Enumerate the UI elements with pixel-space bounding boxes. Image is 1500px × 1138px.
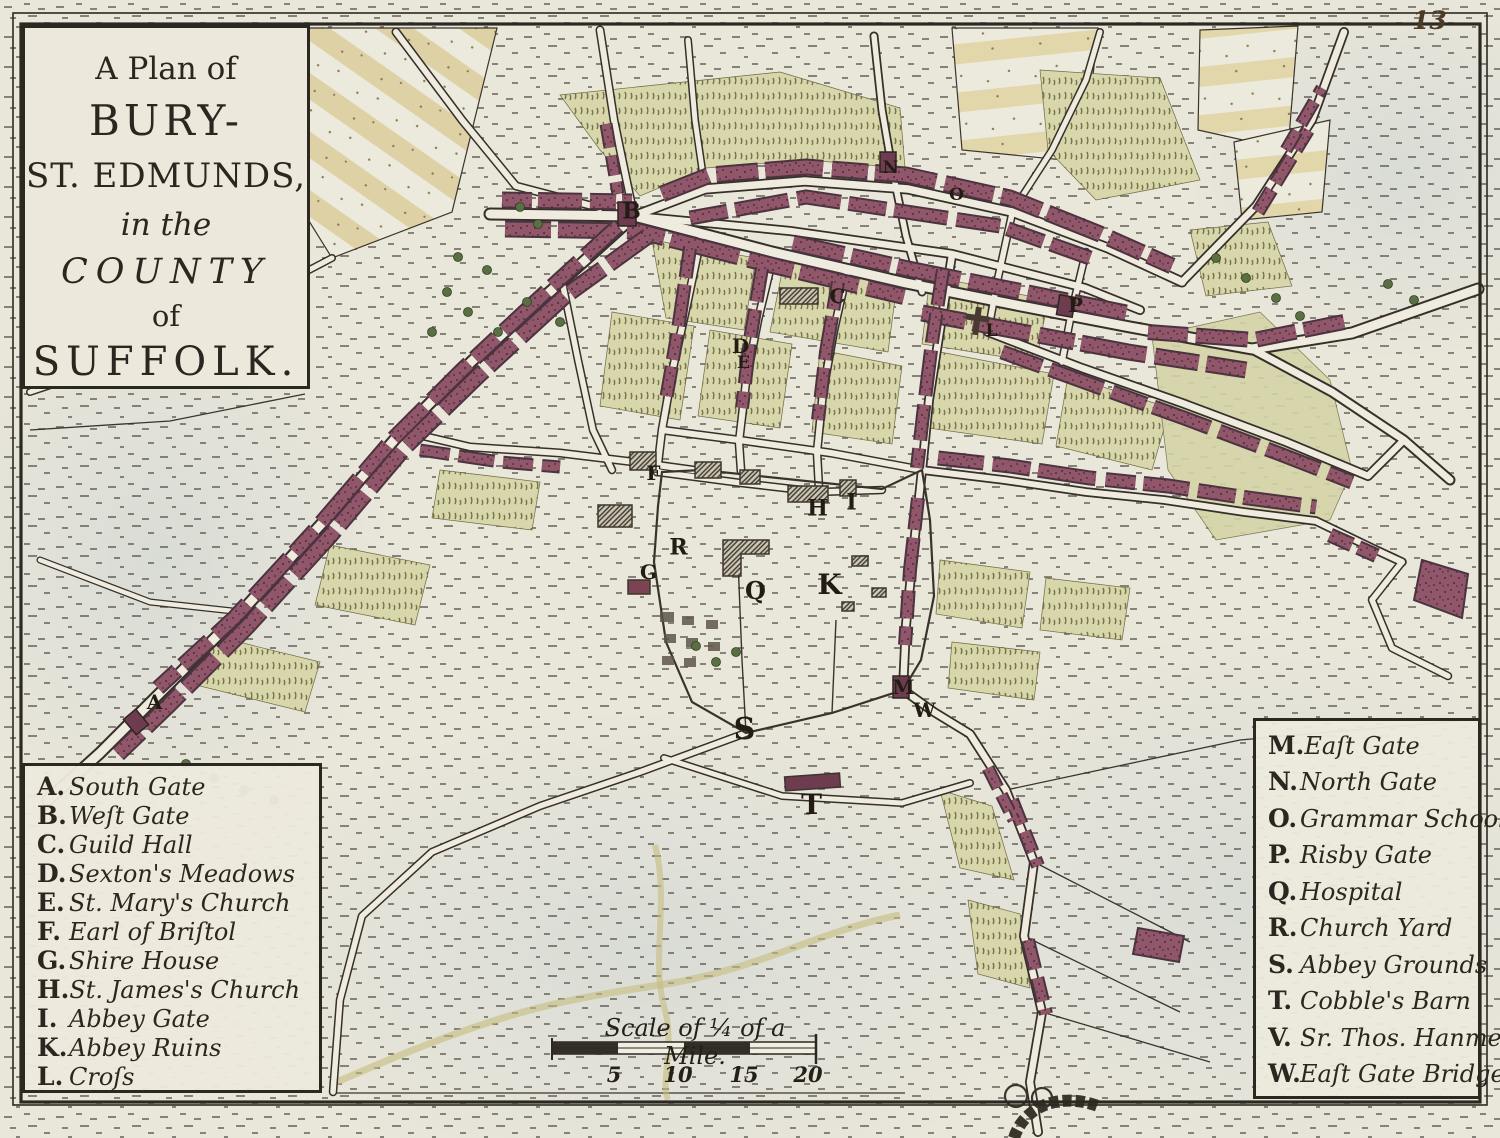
legend-key: V. [1268,1023,1300,1052]
legend-key: D. [37,859,69,888]
legend-item: R. Church Yard [1268,913,1470,942]
map-letter: N [883,158,900,178]
legend-item: H. St. James's Church [37,975,309,1004]
legend-item: M. Eaſt Gate [1268,731,1470,760]
legend-key: H. [37,975,69,1004]
legend-key: B. [37,801,69,830]
map-letter: K [817,568,842,601]
legend-key: C. [37,830,69,859]
legend-key: S. [1268,950,1300,979]
legend-key: G. [37,946,69,975]
legend-key: I. [37,1004,69,1033]
legend-item: S. Abbey Grounds [1268,950,1470,979]
legend-label: Earl of Briſtol [69,918,236,946]
legend-item: L. Croſs [37,1062,309,1091]
legend-key: E. [37,888,69,917]
legend-label: Guild Hall [69,831,193,859]
map-letter: R [669,535,688,561]
legend-key: O. [1268,804,1300,833]
title-line: COUNTY [61,251,271,295]
legend-label: Hospital [1300,878,1402,906]
map-letter: C [830,284,847,308]
legend-item: I. Abbey Gate [37,1004,309,1033]
legend-item: P. Risby Gate [1268,840,1470,869]
title-line: ST. EDMUNDS, [26,155,306,198]
legend-key: L. [37,1062,69,1091]
legend-item: Q. Hospital [1268,877,1470,906]
legend-key: P. [1268,840,1300,869]
map-letter: L [986,321,999,341]
legend-key: N. [1268,767,1300,796]
legend-label: Shire House [69,947,219,975]
legend-label: Croſs [69,1063,134,1091]
map-letter: W [913,698,936,722]
legend-label: Abbey Ruins [69,1034,221,1062]
legend-label: Sr. Thos. Hanmer [1300,1024,1500,1052]
legend-item: O. Grammar School [1268,804,1470,833]
legend-label: Cobble's Barn [1300,987,1471,1015]
map-letter: S [734,712,757,747]
legend-key: T. [1268,986,1300,1015]
legend-item: V. Sr. Thos. Hanmer [1268,1023,1470,1052]
map-letter: B [622,199,642,225]
title-cartouche: A Plan of BURY- ST. EDMUNDS, in the COUN… [22,25,310,389]
legend-key: W. [1268,1059,1300,1088]
legend-label: Church Yard [1300,914,1452,942]
legend-key: K. [37,1033,69,1062]
map-letter: F [646,461,661,485]
legend-item: D. Sexton's Meadows [37,859,309,888]
legend-label: Weſt Gate [69,802,189,830]
map-letter: G [640,560,658,584]
legend-item: B. Weſt Gate [37,801,309,830]
legend-item: G. Shire House [37,946,309,975]
scale-tick: 20 [793,1062,822,1087]
title-line: BURY- [89,95,243,148]
legend-key: R. [1268,913,1300,942]
scale-tick: 5 [607,1062,622,1087]
legend-key: A. [37,772,69,801]
legend-item: C. Guild Hall [37,830,309,859]
legend-item: A. South Gate [37,772,309,801]
map-letter: O [949,185,965,205]
title-line: A Plan of [95,50,236,89]
legend-label: Abbey Grounds [1300,951,1487,979]
legend-label: South Gate [69,773,205,801]
legend-right: M. Eaſt Gate N. North Gate O. Grammar Sc… [1253,718,1481,1099]
legend-label: St. James's Church [69,976,300,1004]
legend-item: K. Abbey Ruins [37,1033,309,1062]
title-line: in the [121,206,212,245]
legend-label: Abbey Gate [69,1005,210,1033]
legend-key: Q. [1268,877,1300,906]
legend-label: St. Mary's Church [69,889,290,917]
legend-item: T. Cobble's Barn [1268,986,1470,1015]
map-letter: I [846,490,857,516]
scale-tick: 15 [729,1062,758,1087]
legend-label: Risby Gate [1300,841,1432,869]
title-line: SUFFOLK. [33,337,300,387]
scale-tick: 10 [663,1062,692,1087]
page-number: 13 [1412,6,1447,35]
map-page: A Plan of BURY- ST. EDMUNDS, in the COUN… [0,0,1500,1138]
legend-key: F. [37,917,69,946]
legend-label: Eaſt Gate [1304,732,1419,760]
map-letter: H [807,496,829,522]
legend-label: Eaſt Gate Bridge [1300,1060,1500,1088]
map-letter: Q [745,576,767,605]
legend-label: Grammar School [1300,805,1500,833]
map-letter: T [801,788,823,821]
legend-item: N. North Gate [1268,767,1470,796]
map-letter: P [1068,293,1084,317]
legend-item: E. St. Mary's Church [37,888,309,917]
title-line: of [152,298,180,334]
map-letter: E [737,353,751,373]
map-letter: A [147,690,164,714]
legend-left: A. South Gate B. Weſt Gate C. Guild Hall… [22,763,322,1093]
legend-item: F. Earl of Briſtol [37,917,309,946]
legend-key: M. [1268,731,1304,760]
legend-label: North Gate [1300,768,1437,796]
legend-label: Sexton's Meadows [69,860,295,888]
legend-item: W. Eaſt Gate Bridge [1268,1059,1470,1088]
map-letter: M [892,675,915,699]
